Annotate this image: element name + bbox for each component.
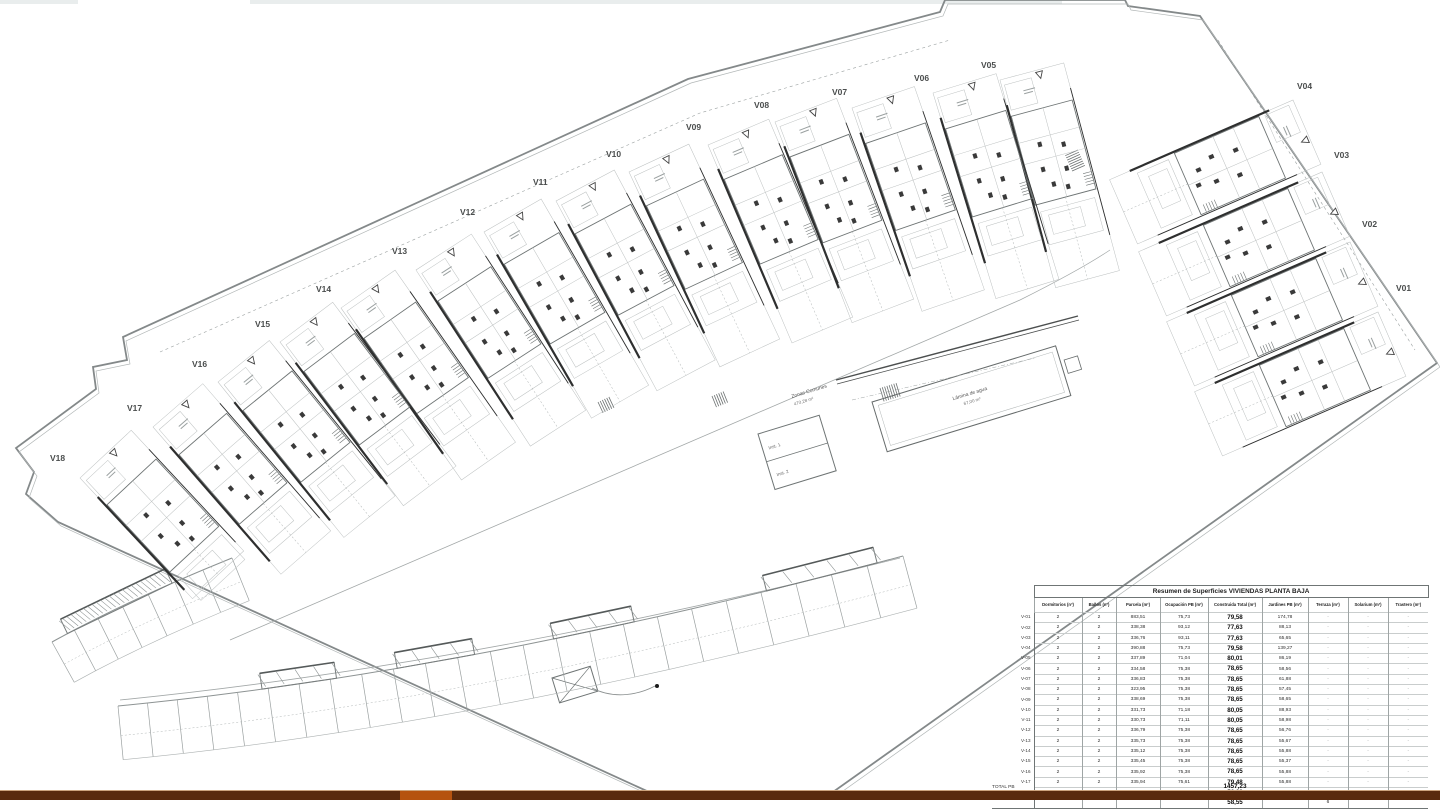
cell-ban: 2	[1082, 643, 1116, 653]
cell-ocup: 75,38	[1160, 695, 1208, 705]
cell-ban: 2	[1082, 695, 1116, 705]
cell-sol: -	[1348, 746, 1388, 756]
plan-sheet: Lámina de agua67,00 m²Zonas Comunes470,2…	[0, 0, 1440, 800]
cell-sol: -	[1348, 613, 1388, 623]
cell-sol: -	[1348, 664, 1388, 674]
unit-v18	[80, 430, 248, 604]
cell-tras: -	[1388, 695, 1428, 705]
col-header: Solarium (m²)	[1348, 598, 1388, 613]
cell-sol: -	[1348, 623, 1388, 633]
row-label: V-10	[992, 705, 1034, 715]
unit-label-v07: V07	[832, 87, 847, 97]
cell-dorm: 2	[1034, 705, 1082, 715]
cell-sol: -	[1348, 643, 1388, 653]
cell-tras: -	[1388, 726, 1428, 736]
unit-label-v16: V16	[192, 359, 207, 369]
cell-ban: 2	[1082, 633, 1116, 643]
row-label: V-14	[992, 746, 1034, 756]
cell-ocup: 75,38	[1160, 767, 1208, 777]
cell-ban: 2	[1082, 685, 1116, 695]
unit-v10	[629, 144, 780, 367]
cell-sol: -	[1348, 757, 1388, 767]
cell-ocup: 75,38	[1160, 726, 1208, 736]
cell-tras: -	[1388, 757, 1428, 767]
row-label: V-01	[992, 613, 1034, 623]
pool: Lámina de agua67,00 m²	[872, 341, 1088, 452]
cell-terr: -	[1308, 736, 1348, 746]
cell-ban: 2	[1082, 715, 1116, 725]
cell-terr: -	[1308, 767, 1348, 777]
cell-ban: 2	[1082, 767, 1116, 777]
cell-ban: 2	[1082, 746, 1116, 756]
unit-v06	[933, 74, 1059, 299]
unit-label-v13: V13	[392, 246, 407, 256]
unit-v14	[341, 270, 516, 480]
cell-ocup: 93,11	[1160, 633, 1208, 643]
cell-jard: 61,88	[1262, 674, 1308, 684]
unit-label-v03: V03	[1334, 150, 1349, 160]
cell-dorm: 2	[1034, 726, 1082, 736]
table-title: Resumen de Superficies VIVIENDAS PLANTA …	[1034, 586, 1428, 598]
cell-dorm: 2	[1034, 643, 1082, 653]
cell-ocup: 75,38	[1160, 746, 1208, 756]
cell-sol: -	[1348, 695, 1388, 705]
cell-dorm: 2	[1034, 613, 1082, 623]
cell-ban: 2	[1082, 726, 1116, 736]
cell-parcela: 390,88	[1116, 643, 1160, 653]
unit-v01	[1195, 312, 1406, 456]
cell-constr: 78,65	[1208, 736, 1262, 746]
unit-label-v10: V10	[606, 149, 621, 159]
summary-table: Resumen de Superficies VIVIENDAS PLANTA …	[992, 585, 1428, 809]
cell-ban: 2	[1082, 736, 1116, 746]
cell-tras: -	[1388, 613, 1428, 623]
cell-dorm: 2	[1034, 715, 1082, 725]
cell-constr: 78,65	[1208, 664, 1262, 674]
footer-accent	[400, 791, 452, 800]
cell-ocup: 75,38	[1160, 664, 1208, 674]
cell-tras: -	[1388, 623, 1428, 633]
cell-jard: 174,78	[1262, 613, 1308, 623]
cell-constr: 78,65	[1208, 757, 1262, 767]
cell-tras: -	[1388, 633, 1428, 643]
unit-v05	[1000, 63, 1119, 288]
cell-terr: -	[1308, 654, 1348, 664]
row-label: V-09	[992, 695, 1034, 705]
cell-ocup: 75,73	[1160, 643, 1208, 653]
cell-parcela: 338,69	[1116, 695, 1160, 705]
cell-terr: -	[1308, 674, 1348, 684]
unit-label-v11: V11	[533, 177, 548, 187]
col-header	[992, 598, 1034, 613]
cell-ocup: 71,11	[1160, 715, 1208, 725]
unit-label-v08: V08	[754, 100, 769, 110]
cell-tras: -	[1388, 685, 1428, 695]
row-label: V-08	[992, 685, 1034, 695]
cell-terr: -	[1308, 685, 1348, 695]
cell-parcela: 337,89	[1116, 654, 1160, 664]
cell-dorm: 2	[1034, 757, 1082, 767]
cell-jard: 56,76	[1262, 726, 1308, 736]
unit-label-v17: V17	[127, 403, 142, 413]
footer-bar	[0, 790, 1440, 800]
cell-tras: -	[1388, 664, 1428, 674]
cell-tras: -	[1388, 705, 1428, 715]
cell-ocup: 75,38	[1160, 685, 1208, 695]
col-header: Construida Total (m²)	[1208, 598, 1262, 613]
row-label: V-05	[992, 654, 1034, 664]
cell-terr: -	[1308, 633, 1348, 643]
cell-jard: 86,19	[1262, 654, 1308, 664]
cell-constr: 80,01	[1208, 654, 1262, 664]
row-label: V-04	[992, 643, 1034, 653]
unit-v08	[775, 98, 914, 322]
row-label: V-03	[992, 633, 1034, 643]
cell-sol: -	[1348, 654, 1388, 664]
cell-ocup: 75,73	[1160, 613, 1208, 623]
cell-dorm: 2	[1034, 654, 1082, 664]
cell-tras: -	[1388, 736, 1428, 746]
cell-jard: 88,13	[1262, 623, 1308, 633]
col-header: Baños (nº)	[1082, 598, 1116, 613]
cell-parcela: 331,73	[1116, 705, 1160, 715]
cell-constr: 78,65	[1208, 726, 1262, 736]
cell-ocup: 75,38	[1160, 757, 1208, 767]
cell-dorm: 2	[1034, 674, 1082, 684]
row-label: V-11	[992, 715, 1034, 725]
cell-jard: 55,67	[1262, 736, 1308, 746]
cell-ocup: 71,04	[1160, 654, 1208, 664]
cell-dorm: 2	[1034, 633, 1082, 643]
unit-label-v01: V01	[1396, 283, 1411, 293]
cell-dorm: 2	[1034, 664, 1082, 674]
row-label: V-15	[992, 757, 1034, 767]
unit-v04	[1110, 100, 1321, 244]
cell-jard: 139,27	[1262, 643, 1308, 653]
unit-label-v15: V15	[255, 319, 270, 329]
cell-tras: -	[1388, 654, 1428, 664]
cell-dorm: 2	[1034, 623, 1082, 633]
cell-ban: 2	[1082, 757, 1116, 767]
row-label: V-06	[992, 664, 1034, 674]
cell-terr: -	[1308, 623, 1348, 633]
cell-terr: -	[1308, 705, 1348, 715]
cell-terr: -	[1308, 715, 1348, 725]
cell-terr: -	[1308, 613, 1348, 623]
unit-label-v14: V14	[316, 284, 331, 294]
cell-dorm: 2	[1034, 746, 1082, 756]
row-label: V-07	[992, 674, 1034, 684]
inst-rooms: Inst. 1Inst. 2	[758, 415, 836, 489]
transformer-box	[552, 666, 598, 703]
cell-terr: -	[1308, 746, 1348, 756]
unit-label-v18: V18	[50, 453, 65, 463]
cell-sol: -	[1348, 674, 1388, 684]
cell-parcela: 335,12	[1116, 746, 1160, 756]
cell-parcela: 335,45	[1116, 757, 1160, 767]
unit-v03	[1139, 172, 1350, 316]
cell-ocup: 75,38	[1160, 674, 1208, 684]
row-label: V-13	[992, 736, 1034, 746]
col-header: Dormitorios (nº)	[1034, 598, 1082, 613]
row-label: V-12	[992, 726, 1034, 736]
col-header: Parcela (m²)	[1116, 598, 1160, 613]
cell-constr: 80,05	[1208, 705, 1262, 715]
cell-parcela: 330,73	[1116, 715, 1160, 725]
stairs-hatch	[598, 397, 614, 413]
cell-sol: -	[1348, 726, 1388, 736]
cell-sol: -	[1348, 736, 1388, 746]
cell-dorm: 2	[1034, 695, 1082, 705]
cell-tras: -	[1388, 674, 1428, 684]
cell-constr: 78,65	[1208, 685, 1262, 695]
unit-label-v06: V06	[914, 73, 929, 83]
cell-constr: 79,58	[1208, 613, 1262, 623]
cell-tras: -	[1388, 643, 1428, 653]
parking-band-main	[118, 547, 917, 759]
cell-ban: 2	[1082, 654, 1116, 664]
cell-jard: 65,65	[1262, 633, 1308, 643]
cell-dorm: 2	[1034, 767, 1082, 777]
total-value: 1457,23	[1208, 783, 1262, 790]
unit-label-v12: V12	[460, 207, 475, 217]
cell-jard: 58,98	[1262, 715, 1308, 725]
cell-parcela: 883,51	[1116, 613, 1160, 623]
cell-sol: -	[1348, 767, 1388, 777]
cell-parcela: 338,38	[1116, 623, 1160, 633]
cell-sol: -	[1348, 705, 1388, 715]
unit-label-v05: V05	[981, 60, 996, 70]
unit-v11	[556, 170, 715, 391]
cell-jard: 55,88	[1262, 767, 1308, 777]
common-zones-label: Zonas Comunes470,28 m²	[791, 383, 830, 406]
cell-terr: -	[1308, 643, 1348, 653]
cell-constr: 78,65	[1208, 746, 1262, 756]
cell-parcela: 336,83	[1116, 674, 1160, 684]
cell-jard: 57,45	[1262, 685, 1308, 695]
cell-constr: 80,05	[1208, 715, 1262, 725]
cell-ban: 2	[1082, 705, 1116, 715]
unit-v13	[416, 234, 586, 446]
cell-constr: 77,63	[1208, 623, 1262, 633]
cell-tras: -	[1388, 746, 1428, 756]
cell-ban: 2	[1082, 664, 1116, 674]
cell-dorm: 2	[1034, 685, 1082, 695]
cell-jard: 55,37	[1262, 757, 1308, 767]
cell-constr: 78,65	[1208, 695, 1262, 705]
col-header: Terraza (m²)	[1308, 598, 1348, 613]
unit-label-v04: V04	[1297, 81, 1312, 91]
cell-jard: 88,93	[1262, 705, 1308, 715]
cell-ban: 2	[1082, 623, 1116, 633]
cell-constr: 78,65	[1208, 767, 1262, 777]
svg-text:Inst. 1: Inst. 1	[768, 442, 782, 451]
cell-parcela: 336,79	[1116, 726, 1160, 736]
cell-constr: 77,63	[1208, 633, 1262, 643]
col-header: Trastero (m²)	[1388, 598, 1428, 613]
cell-sol: -	[1348, 633, 1388, 643]
parking-band-west	[52, 558, 249, 682]
cell-ban: 2	[1082, 613, 1116, 623]
cell-constr: 78,65	[1208, 674, 1262, 684]
cell-tras: -	[1388, 715, 1428, 725]
cell-ocup: 75,38	[1160, 736, 1208, 746]
unit-v15	[280, 302, 456, 505]
cell-parcela: 335,73	[1116, 736, 1160, 746]
unit-label-v02: V02	[1362, 219, 1377, 229]
row-label: V-16	[992, 767, 1034, 777]
cell-tras: -	[1388, 767, 1428, 777]
cell-ban: 2	[1082, 674, 1116, 684]
cell-sol: -	[1348, 715, 1388, 725]
cell-parcela: 336,76	[1116, 633, 1160, 643]
col-header: Jardines PB (m²)	[1262, 598, 1308, 613]
cell-terr: -	[1308, 726, 1348, 736]
cell-ocup: 93,12	[1160, 623, 1208, 633]
cell-dorm: 2	[1034, 736, 1082, 746]
cell-jard: 58,56	[1262, 664, 1308, 674]
row-label: V-02	[992, 623, 1034, 633]
unit-label-v09: V09	[686, 122, 701, 132]
cell-constr: 79,58	[1208, 643, 1262, 653]
svg-text:Inst. 2: Inst. 2	[776, 469, 790, 478]
cell-sol: -	[1348, 685, 1388, 695]
cell-terr: -	[1308, 757, 1348, 767]
unit-v02	[1167, 242, 1378, 386]
stairs-hatch	[712, 392, 728, 408]
unit-v12	[484, 199, 649, 418]
cell-terr: -	[1308, 695, 1348, 705]
cell-parcela: 323,95	[1116, 685, 1160, 695]
cell-jard: 58,65	[1262, 695, 1308, 705]
cell-parcela: 334,58	[1116, 664, 1160, 674]
cell-parcela: 335,92	[1116, 767, 1160, 777]
cell-terr: -	[1308, 664, 1348, 674]
col-header: Ocupación PB (m²)	[1160, 598, 1208, 613]
cell-jard: 55,88	[1262, 746, 1308, 756]
cell-ocup: 71,18	[1160, 705, 1208, 715]
